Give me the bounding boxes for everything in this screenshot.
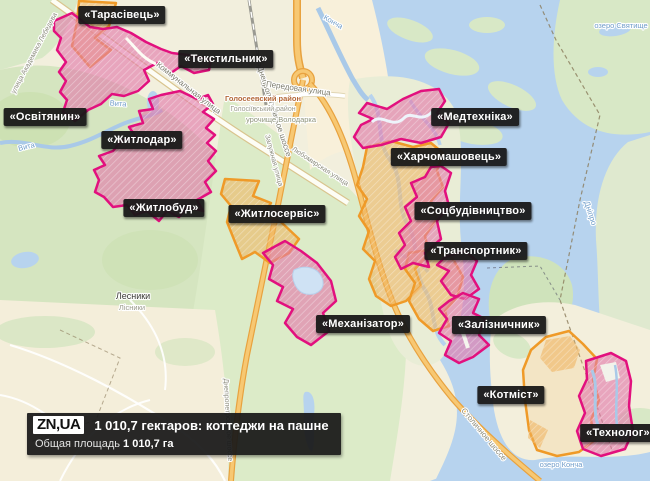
area-label-zaliznychnyk: «Залізничник» [452, 316, 546, 334]
area-label-kharchomashovets: «Харчомашовець» [391, 148, 507, 166]
area-label-tekhnolog: «Технолог» [580, 424, 650, 442]
znua-logo: ZN,UA [33, 416, 84, 434]
caption-subtitle-row: Общая площадь 1 010,7 га [27, 437, 341, 455]
area-label-tarasivets: «Тарасівець» [78, 6, 165, 24]
area-label-kotmist: «Котміст» [477, 386, 544, 404]
map-screenshot: Коммунальная улица Днепропетровское шосс… [0, 0, 650, 481]
area-label-zhytlodar: «Житлодар» [101, 131, 182, 149]
district-label: урочище Володарка [246, 115, 317, 124]
area-label-medtekhnika: «Медтехніка» [431, 108, 519, 126]
area-label-zhytlobud: «Житлобуд» [123, 199, 204, 217]
settlement-label: Лісники [119, 303, 145, 312]
water-label: Вита [110, 98, 128, 108]
area-label-osvityanyn: «Освітянин» [4, 108, 87, 126]
caption-subtitle-value: 1 010,7 га [123, 438, 173, 450]
district-label: Голосіївський район [230, 105, 295, 113]
caption-title: 1 010,7 гектаров: коттеджи на пашне [94, 418, 328, 433]
area-label-mekhanizator: «Механізатор» [316, 315, 410, 333]
area-label-zhytloservis: «Житлосервіс» [228, 205, 325, 223]
area-label-transportnyk: «Транспортник» [424, 242, 527, 260]
settlement-label: Лесники [116, 291, 150, 301]
caption-subtitle-label: Общая площадь [35, 438, 120, 450]
water-label: озеро Конча [540, 460, 584, 469]
water-label: озеро Святище [594, 21, 647, 30]
caption-box: ZN,UA 1 010,7 гектаров: коттеджи на пашн… [27, 413, 341, 455]
map-canvas: Коммунальная улица Днепропетровское шосс… [0, 0, 650, 481]
district-label: Голосеевский район [225, 94, 301, 103]
area-label-tekstylnyk: «Текстильник» [178, 50, 273, 68]
area-label-sotsbudivnytstvo: «Соцбудівництво» [414, 202, 531, 220]
caption-title-row: ZN,UA 1 010,7 гектаров: коттеджи на пашн… [27, 413, 341, 437]
